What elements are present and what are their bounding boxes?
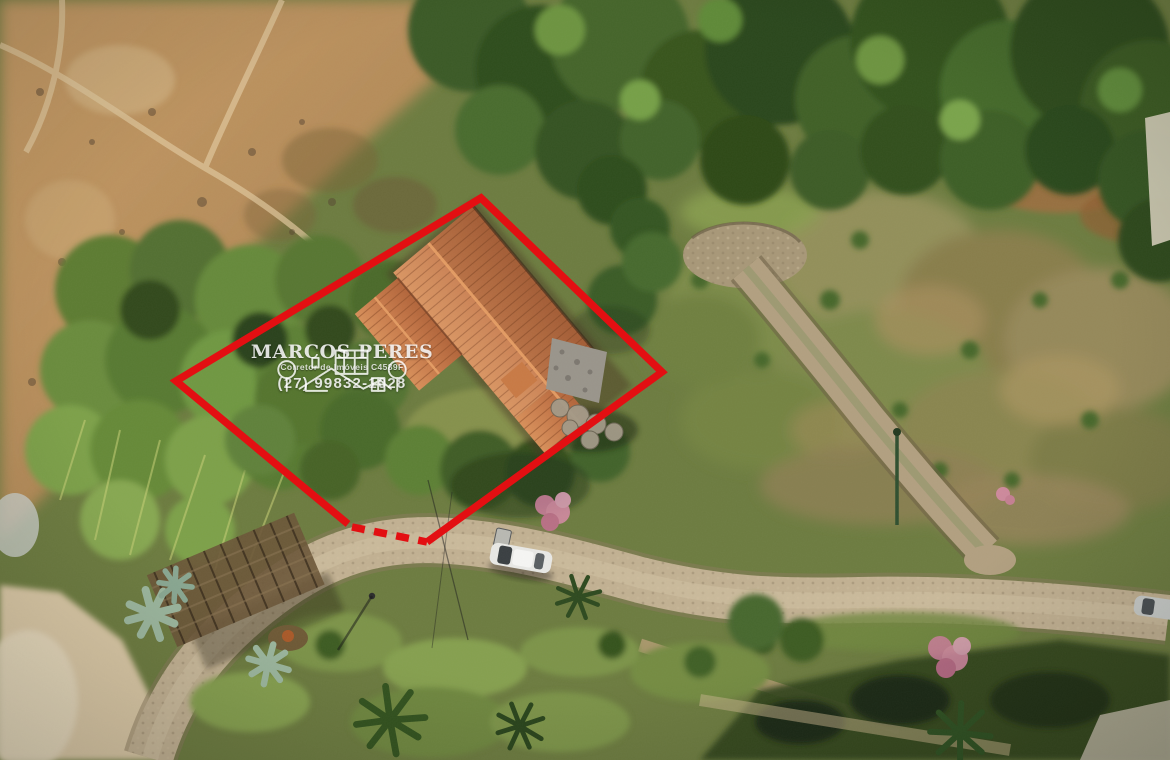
- aerial-photo: [0, 0, 1170, 760]
- aerial-photo-stage: MARCOS PERES Corretor de Imóveis C4589F …: [0, 0, 1170, 760]
